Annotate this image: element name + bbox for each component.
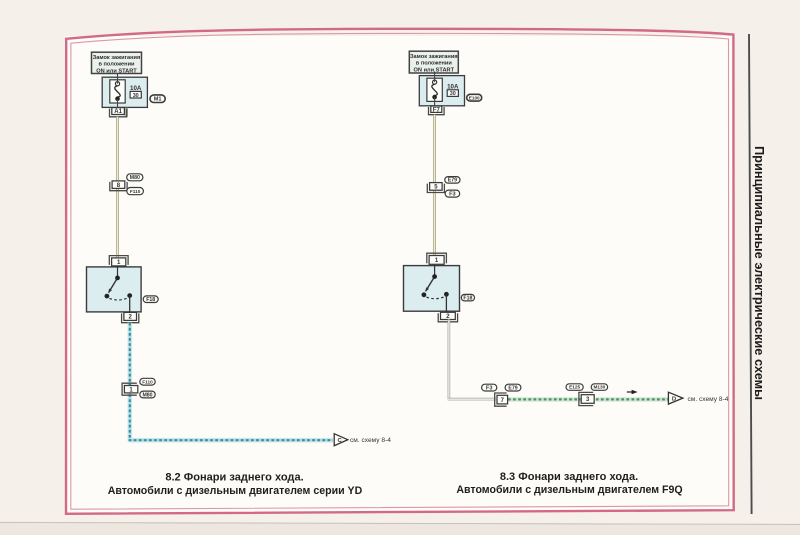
svg-text:Замок зажигания: Замок зажигания (93, 55, 141, 61)
svg-text:D: D (672, 396, 676, 402)
svg-text:F110: F110 (130, 189, 141, 194)
svg-text:в положении: в положении (98, 62, 135, 68)
svg-text:30: 30 (450, 91, 456, 97)
svg-text:Замок зажигания: Замок зажигания (410, 54, 458, 60)
svg-text:Автомобили с дизельным двигате: Автомобили с дизельным двигателем F9Q (456, 484, 682, 496)
svg-text:A1: A1 (114, 109, 122, 115)
svg-text:M80: M80 (142, 392, 152, 398)
svg-text:M1: M1 (154, 97, 162, 103)
svg-text:F18: F18 (463, 296, 472, 302)
svg-text:M130: M130 (594, 385, 606, 390)
svg-text:E79: E79 (508, 386, 517, 392)
svg-text:ON или START: ON или START (96, 68, 137, 74)
svg-text:E100: E100 (469, 95, 480, 100)
svg-text:30: 30 (133, 93, 139, 99)
svg-text:в положении: в положении (416, 61, 453, 67)
svg-text:Принципиальные электрические с: Принципиальные электрические схемы (752, 146, 767, 400)
svg-text:E79: E79 (448, 178, 457, 184)
svg-text:см. схему 8-4: см. схему 8-4 (350, 437, 391, 444)
svg-text:F110: F110 (142, 379, 153, 384)
svg-text:см. схему 8-4: см. схему 8-4 (688, 396, 729, 403)
svg-text:Автомобили с дизельным двигате: Автомобили с дизельным двигателем серии … (108, 485, 363, 497)
svg-text:F7: F7 (433, 107, 441, 113)
svg-text:C: C (337, 438, 342, 444)
svg-text:8.2 Фонари заднего хода.: 8.2 Фонари заднего хода. (165, 472, 303, 484)
svg-text:M80: M80 (130, 175, 140, 181)
svg-text:8.3 Фонари заднего хода.: 8.3 Фонари заднего хода. (500, 471, 638, 483)
svg-text:F18: F18 (146, 297, 155, 303)
svg-text:F3: F3 (486, 386, 493, 392)
svg-text:E125: E125 (569, 385, 580, 390)
svg-text:F3: F3 (449, 192, 456, 198)
